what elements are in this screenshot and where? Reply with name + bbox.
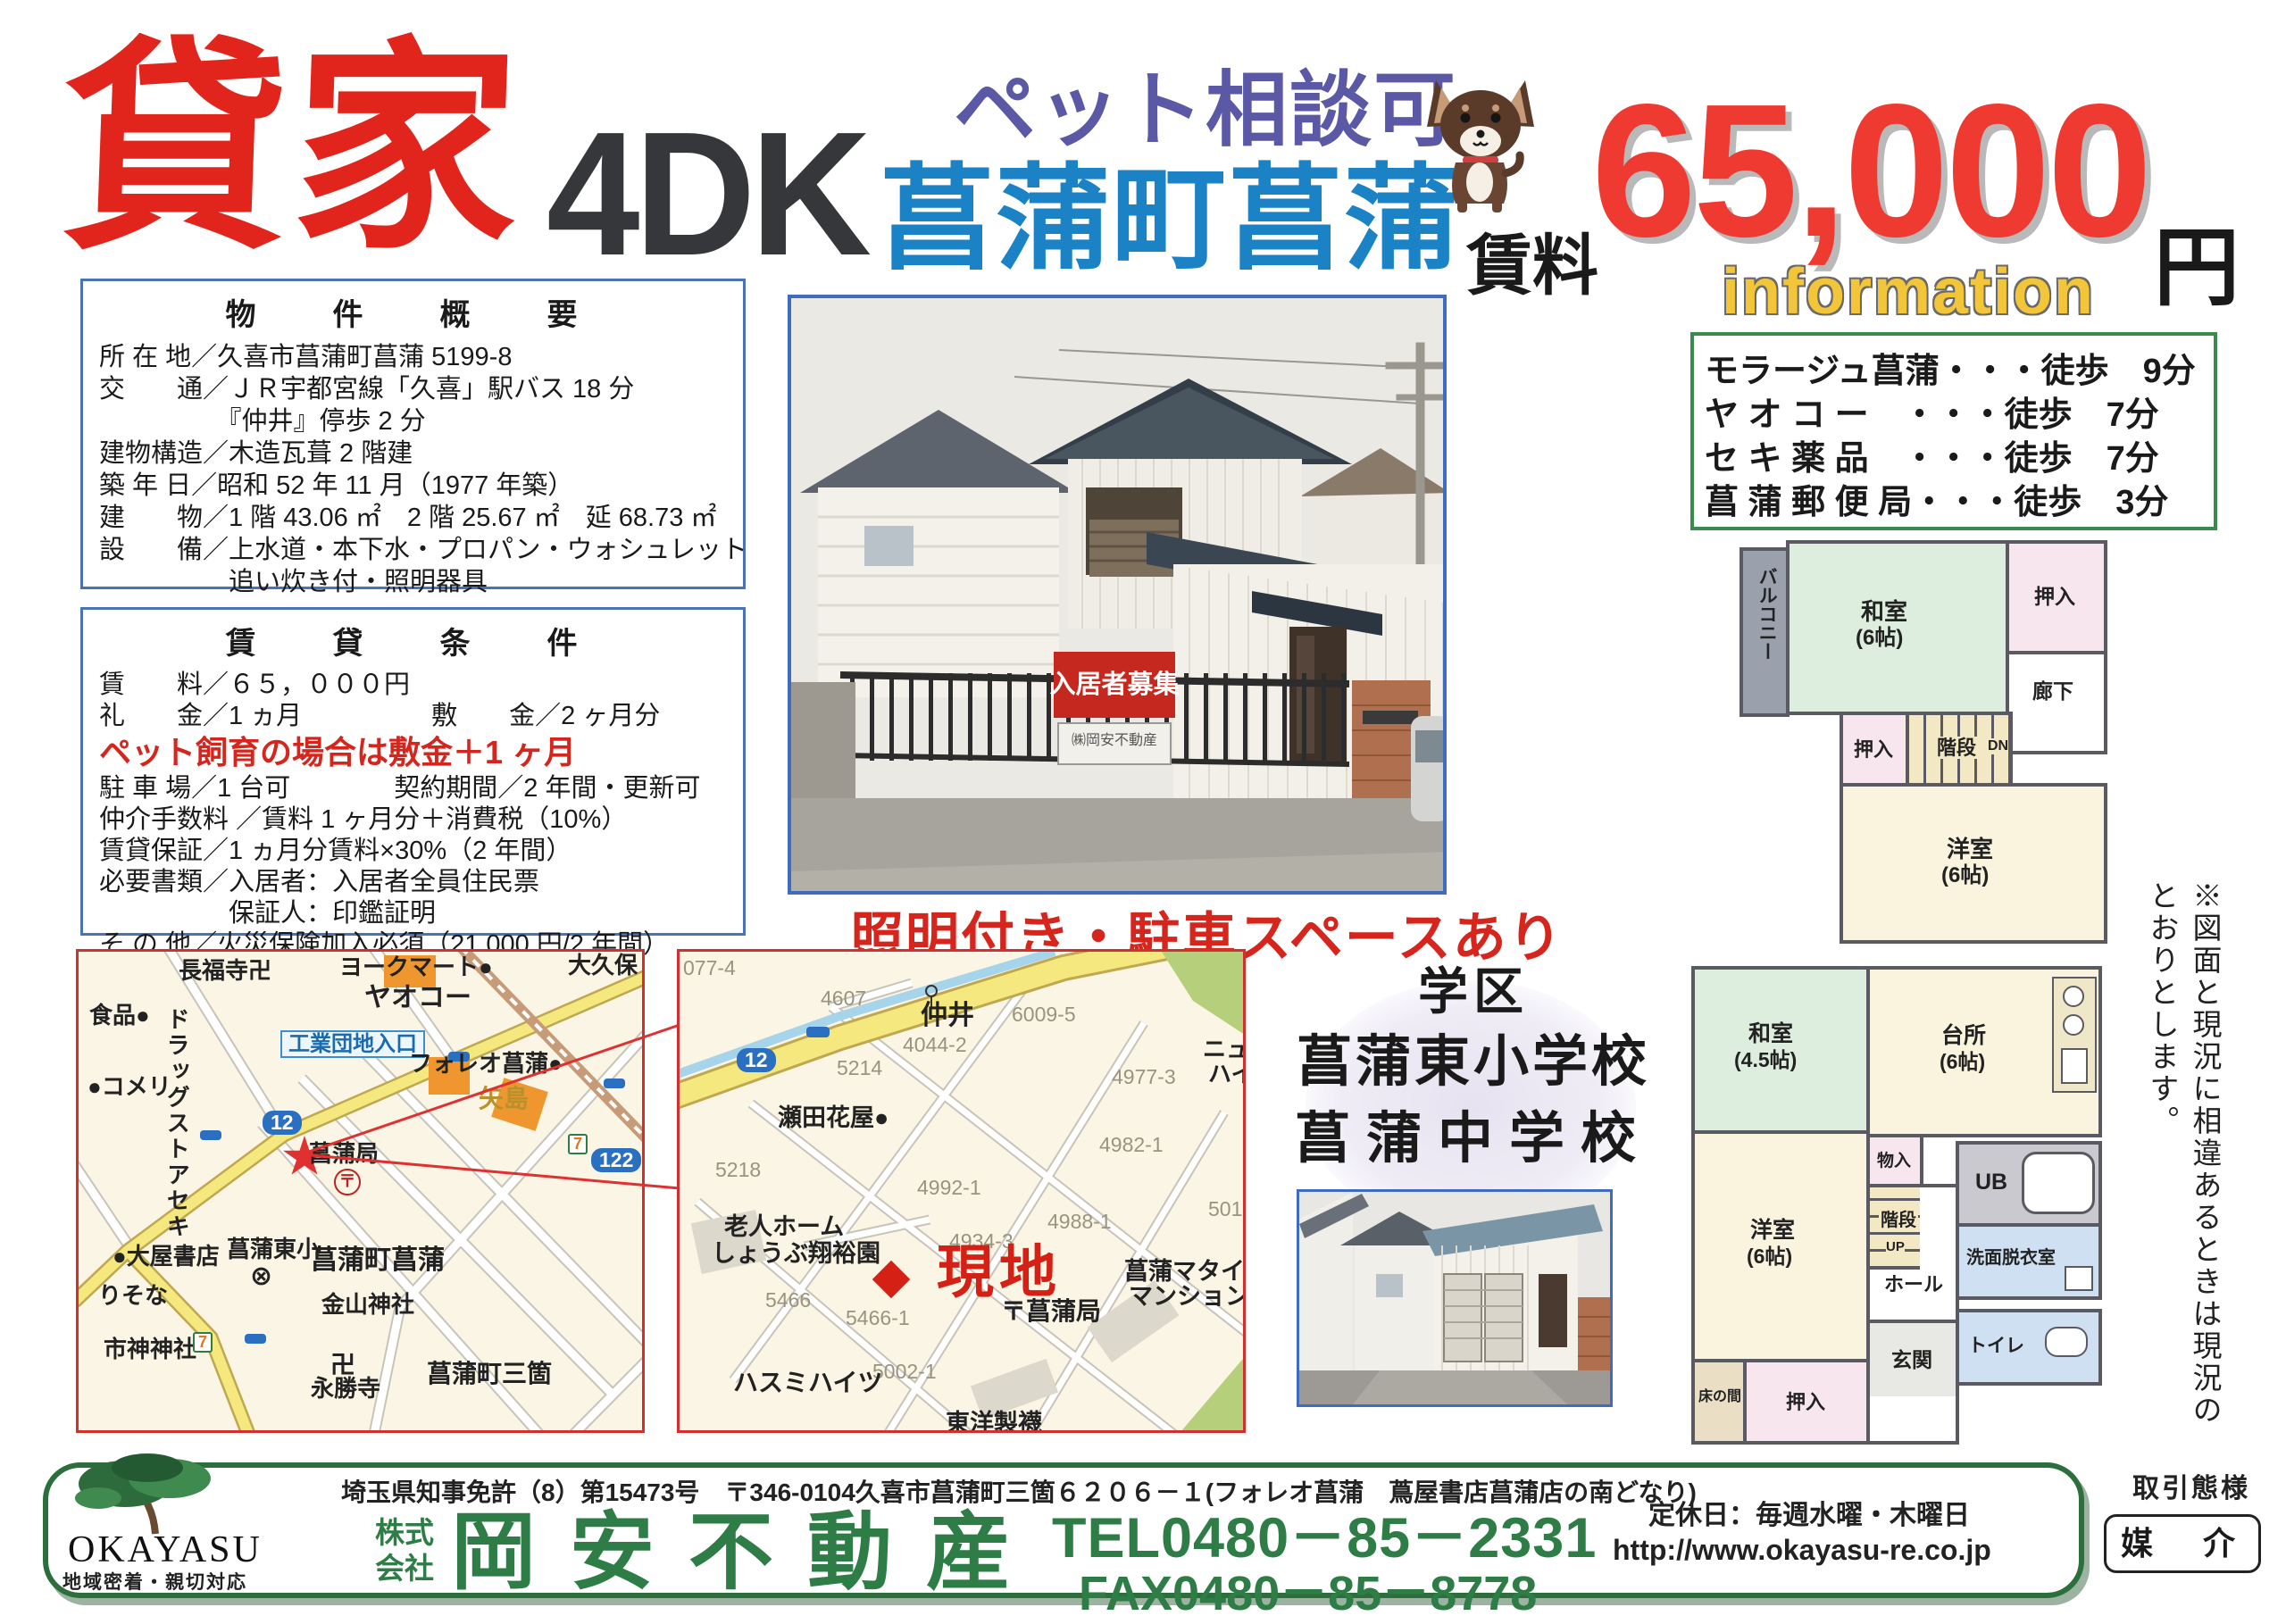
junior-high-school: 菖蒲中学校 [1286, 1101, 1661, 1178]
overview-rows: 所 在 地／久喜市菖蒲町菖蒲 5199-8交 通／ＪＲ宇都宮線「久喜」駅バス 1… [99, 341, 727, 598]
conditions-rows: 駐 車 場／1 台可 契約期間／2 年間・更新可仲介手数料 ／賃料 1 ヶ月分＋… [99, 773, 727, 961]
deal-type-badge: 媒 介 [2104, 1514, 2261, 1573]
information-row: ヤ オ コ ー ・・・徒歩 7分 [1705, 394, 2203, 437]
floor-plan-1f: 和室 (4.5帖) 台所 (6帖) 物入 階段 UP 洋室 (6帖) UB 洗面… [1686, 966, 2107, 1448]
bathtub-icon [2022, 1152, 2095, 1214]
brown-wall [1578, 1297, 1610, 1383]
map-label: ●大屋書店 [113, 1245, 220, 1269]
map-label: しょうぶ翔裕園 [712, 1241, 880, 1266]
school-district-label: 学区 [1286, 952, 1661, 1024]
hallway-2f-label: 廊下 [2032, 679, 2073, 703]
balcony-room: バルコニー [1740, 547, 1790, 717]
map-label: 東洋製襪 [946, 1411, 1042, 1433]
map-label: 12 [263, 1111, 302, 1135]
map-label: 5218 [715, 1159, 761, 1180]
map-label: 老人ホーム [724, 1214, 844, 1239]
washitsu-2f-label: 和室 [1861, 599, 1907, 626]
oshiire2-2f-label: 押入 [1854, 738, 1893, 761]
conditions-row: 賃貸保証／1 ヵ月分賃料×30%（2 年間） [99, 836, 727, 867]
chihuahua-dog-icon [1422, 73, 1539, 214]
kitchen-counter [2052, 977, 2097, 1093]
map-label: 4982-1 [1099, 1134, 1164, 1155]
hall-1f [1920, 1184, 1959, 1337]
map-label: 7 [568, 1134, 588, 1154]
map-label: 卍 [330, 1352, 355, 1378]
overview-title: 物 件 概 要 [99, 287, 727, 341]
elementary-school: 菖蒲東小学校 [1286, 1024, 1661, 1101]
map-label: 瀬田花屋● [778, 1105, 889, 1130]
map-label: ハスミハイツ [733, 1370, 882, 1395]
floor-plan-2f: バルコニー 和室 (6帖) 押入 廊下 押入 階段 DN 洋室 (6帖) [1740, 540, 2107, 944]
rental-conditions-panel: 賃 貸 条 件 賃 料／６５，０００円 礼 金／1 ヵ月 敷 金／2 ヶ月分 ペ… [80, 607, 746, 936]
map-label: 長福寺卍 [179, 959, 271, 983]
company-prefix-top: 株式 [375, 1516, 434, 1550]
map-label: 矢島 [479, 1086, 529, 1112]
map-label: 6009-5 [1012, 1004, 1076, 1025]
overview-row: 築 年 日／昭和 52 年 11 月（1977 年築） [99, 470, 727, 502]
map-label: 12 [737, 1048, 776, 1072]
page-title: 貸家 [59, 37, 528, 262]
overview-row: 追い炊き付・照明器具 [99, 566, 727, 598]
logo-slogan: 地域密着・親切対応 [63, 1568, 247, 1595]
information-rows: モラージュ菖蒲・・・徒歩 9分ヤ オ コ ー ・・・徒歩 7分セ キ 薬 品 ・… [1705, 350, 2203, 525]
overview-row: 建物構造／木造瓦葺 2 階建 [99, 437, 727, 470]
map-label: 5214 [837, 1057, 882, 1079]
garage-building [1422, 1204, 1603, 1374]
overview-row: 『仲井』停歩 2 分 [99, 405, 727, 437]
washitsu-1f-label: 和室 [1748, 1021, 1793, 1047]
map-label: 7 [193, 1332, 213, 1353]
information-title: information [1722, 255, 2095, 329]
map-label: 122 [591, 1148, 641, 1172]
driveway-photo-illustration [1299, 1192, 1610, 1404]
oshiire-1f-label: 押入 [1786, 1391, 1825, 1413]
map-label: ●コメリ [88, 1075, 171, 1099]
map-label: 菖蒲町菖蒲 [311, 1246, 445, 1275]
school-district-block: 学区 菖蒲東小学校 菖蒲中学校 [1286, 952, 1661, 1178]
washroom: 洗面脱衣室 [1956, 1223, 2102, 1300]
yoshitsu-2f-size: (6帖) [1941, 863, 1989, 888]
oshiire-1f-room: 押入 [1743, 1359, 1870, 1445]
map-label: ヨークマート● [339, 955, 493, 979]
conditions-deposit-row: 礼 金／1 ヵ月 敷 金／2 ヶ月分 [99, 701, 727, 732]
toilet-icon [2045, 1327, 2088, 1357]
overview-row: 設 備／上水道・本下水・プロパン・ウォシュレット [99, 534, 727, 566]
map-label: 菖蒲局 [309, 1142, 379, 1166]
conditions-row: 仲介手数料 ／賃料 1 ヶ月分＋消費税（10%） [99, 804, 727, 836]
map-label: ⊗ [250, 1262, 272, 1291]
unit-bath-room: UB [1956, 1141, 2102, 1227]
storage-room: 物入 [1866, 1134, 1923, 1187]
plan-disclaimer: ※図面と現況に相違あるときは現況のとおりとします。 [2140, 880, 2225, 1452]
entrance-room: 玄関 [1866, 1320, 1959, 1400]
company-prefix-bottom: 会社 [375, 1552, 434, 1586]
toilet-label: トイレ [1968, 1336, 2024, 1357]
entrance-porch [1866, 1396, 1959, 1445]
information-box: モラージュ菖蒲・・・徒歩 9分ヤ オ コ ー ・・・徒歩 7分セ キ 薬 品 ・… [1690, 332, 2217, 530]
yoshitsu-2f-label: 洋室 [1947, 837, 1993, 863]
map-label: 5466-1 [846, 1307, 910, 1328]
rent-value: 65,000 [1591, 71, 2148, 271]
map-label: 市神神社 [104, 1337, 196, 1362]
map-label: 4044-2 [903, 1034, 967, 1055]
tokonoma-room: 床の間 [1691, 1359, 1747, 1445]
map-label: フォレオ菖蒲● [409, 1052, 563, 1076]
conditions-title: 賃 貸 条 件 [99, 615, 727, 670]
stairs-dn-label: DN [1988, 738, 2008, 754]
kitchen-room: 台所 (6帖) [1866, 966, 2102, 1137]
map-label: 菖蒲町三箇 [427, 1361, 552, 1387]
yoshitsu-1f-label: 洋室 [1750, 1218, 1795, 1244]
deal-type-label: 取引態様 [2132, 1466, 2250, 1505]
driveway-photo [1297, 1189, 1613, 1407]
stairs-1f-label: 階段 [1879, 1211, 1918, 1231]
house-photo: 入居者募集 ㈱岡安不動産 [788, 295, 1447, 895]
washitsu-2f-room: 和室 (6帖) [1786, 540, 2009, 715]
map-label: 仲井 [921, 1002, 974, 1030]
map-label: 077-4 [683, 957, 736, 979]
overview-row: 建 物／1 階 43.06 ㎡ 2 階 25.67 ㎡ 延 68.73 ㎡ [99, 502, 727, 534]
layout-type: 4DK [546, 105, 866, 281]
yoshitsu-1f-room: 洋室 (6帖) [1691, 1130, 1870, 1362]
conditions-rent-row: 賃 料／６５，０００円 [99, 670, 727, 701]
map-label: 工業団地入口 [280, 1030, 425, 1058]
map-label: ニュ [1203, 1037, 1246, 1062]
holiday-line: 定休日：毎週水曜・木曜日 [1648, 1493, 1970, 1532]
map-label: 5013- [1208, 1198, 1246, 1220]
oshiire-2f-label: 押入 [2034, 585, 2075, 608]
overview-row: 所 在 地／久喜市菖蒲町菖蒲 5199-8 [99, 341, 727, 373]
fax-number: FAX0480－85－8778 [1079, 1553, 1537, 1624]
map-label: 〒 [334, 1169, 361, 1195]
okayasu-tree-logo-icon [63, 1453, 241, 1536]
kitchen-size: (6帖) [1940, 1050, 1985, 1073]
rent-label: 賃料 [1466, 212, 1598, 308]
oshiire-2f-room: 押入 [2006, 540, 2107, 654]
stairs-2f: 階段 DN [1906, 712, 2013, 787]
sign2-text: ㈱岡安不動産 [1072, 732, 1157, 748]
website-url: http://www.okayasu-re.co.jp [1613, 1534, 1991, 1567]
detail-map: 077-44607仲井4044-26009-5125214ニュハイ4977-3瀬… [677, 949, 1246, 1433]
house-photo-illustration: 入居者募集 ㈱岡安不動産 [791, 298, 1447, 895]
washroom-label: 洗面脱衣室 [1966, 1248, 2056, 1269]
map-label: 4607 [821, 987, 866, 1009]
map-label: ドラッグストアセキ [164, 1007, 188, 1240]
information-row: セ キ 薬 品 ・・・徒歩 7分 [1705, 437, 2203, 481]
conditions-row: 保証人：印鑑証明 [99, 898, 727, 929]
map-label: 5466 [765, 1289, 811, 1311]
tenant-recruiting-sign: 入居者募集 ㈱岡安不動産 [1049, 652, 1180, 764]
washitsu-1f-room: 和室 (4.5帖) [1691, 966, 1870, 1134]
stairs-1f: 階段 UP [1866, 1184, 1923, 1270]
information-row: モラージュ菖蒲・・・徒歩 9分 [1705, 350, 2203, 394]
map-label: 4988-1 [1047, 1211, 1112, 1232]
okayasu-logo-text: OKAYASU [68, 1528, 263, 1571]
map-label: 4992-1 [917, 1177, 981, 1198]
yoshitsu-2f-room: 洋室 (6帖) [1840, 783, 2107, 944]
stairs-2f-label: 階段 [1934, 737, 1979, 759]
town-title: 菖蒲町菖蒲 [880, 162, 1460, 277]
map-label: 食品● [89, 1004, 150, 1028]
map-label: 金山神社 [321, 1293, 414, 1317]
map-label: 永勝寺 [311, 1377, 380, 1401]
conditions-row: 必要書類／入居者：入居者全員住民票 [99, 867, 727, 898]
sign-text: 入居者募集 [1049, 670, 1180, 699]
company-name: 岡安不動産 [451, 1511, 1045, 1595]
map-label: ハイ [1208, 1062, 1246, 1087]
map-label: 菖蒲マタイ [1124, 1259, 1245, 1284]
balcony-label: バルコニー [1756, 567, 1777, 661]
map-label: マンション [1129, 1284, 1246, 1309]
stairs-up-label: UP [1886, 1239, 1905, 1254]
tokonoma-label: 床の間 [1698, 1389, 1741, 1405]
conditions-row: 駐 車 場／1 台可 契約期間／2 年間・更新可 [99, 773, 727, 804]
toilet-room: トイレ [1956, 1309, 2102, 1386]
kitchen-label: 台所 [1941, 1023, 1986, 1049]
area-map: 長福寺卍ヨークマート●大久保食品●ドラッグストアセキヤオコー工業団地入口フォレオ… [76, 949, 645, 1433]
hall-label: ホール [1884, 1273, 1943, 1295]
map-label: りそな [98, 1284, 168, 1308]
map-label: ヤオコー [364, 984, 471, 1012]
overview-row: 交 通／ＪＲ宇都宮線「久喜」駅バス 18 分 [99, 373, 727, 405]
conditions-pet-note: ペット飼育の場合は敷金＋1 ヶ月 [99, 732, 727, 773]
pet-allowed-note: ペット相談可 [954, 70, 1457, 152]
entrance-label: 玄関 [1891, 1348, 1932, 1371]
washitsu-2f-size: (6帖) [1856, 626, 1903, 651]
map-label: 現地 [937, 1243, 1062, 1303]
map-label: 〒菖蒲局 [1001, 1298, 1101, 1324]
yoshitsu-1f-size: (6帖) [1747, 1245, 1792, 1268]
washitsu-1f-size: (4.5帖) [1734, 1048, 1797, 1071]
parked-car [1411, 716, 1447, 821]
sink-icon [2065, 1266, 2093, 1291]
oshiire2-2f-room: 押入 [1840, 712, 1909, 787]
map-label: 大久保 [568, 954, 638, 978]
information-row: 菖 蒲 郵 便 局・・・徒歩 3分 [1705, 481, 2203, 525]
flyer-page: { "header": { "kashiya": "貸家", "layout":… [0, 0, 2286, 1614]
property-overview-panel: 物 件 概 要 所 在 地／久喜市菖蒲町菖蒲 5199-8交 通／ＪＲ宇都宮線「… [80, 279, 746, 589]
map-label: 4977-3 [1112, 1066, 1176, 1087]
rent-unit: 円 [2154, 198, 2240, 322]
hallway-2f: 廊下 [2006, 651, 2107, 754]
storage-label: 物入 [1877, 1152, 1911, 1171]
unit-bath-label: UB [1975, 1170, 2007, 1195]
map-label: 菖蒲東小 [227, 1237, 320, 1262]
